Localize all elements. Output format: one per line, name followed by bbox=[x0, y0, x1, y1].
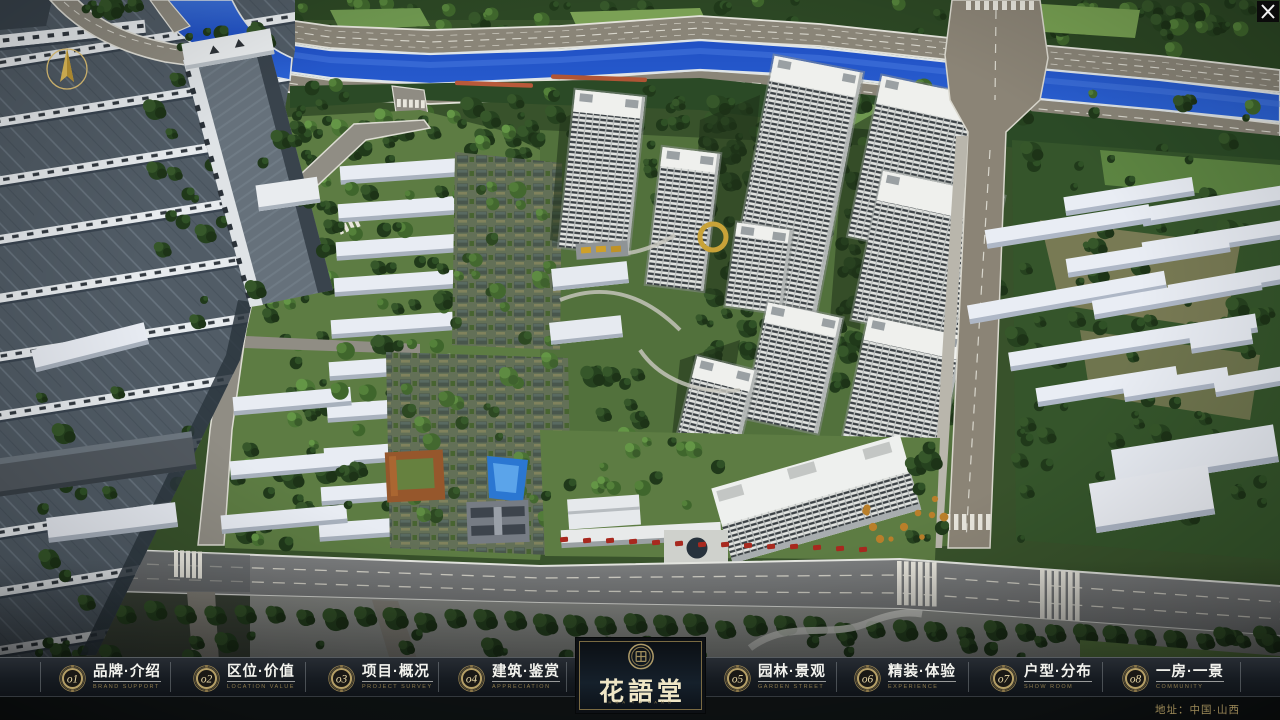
svg-text:o6: o6 bbox=[862, 674, 874, 686]
svg-text:o2: o2 bbox=[201, 674, 213, 686]
svg-text:o5: o5 bbox=[732, 674, 744, 686]
svg-text:o1: o1 bbox=[67, 674, 78, 686]
svg-text:o8: o8 bbox=[1130, 674, 1142, 686]
svg-text:o3: o3 bbox=[336, 674, 348, 686]
svg-text:o7: o7 bbox=[998, 674, 1011, 686]
svg-text:o4: o4 bbox=[466, 674, 478, 686]
